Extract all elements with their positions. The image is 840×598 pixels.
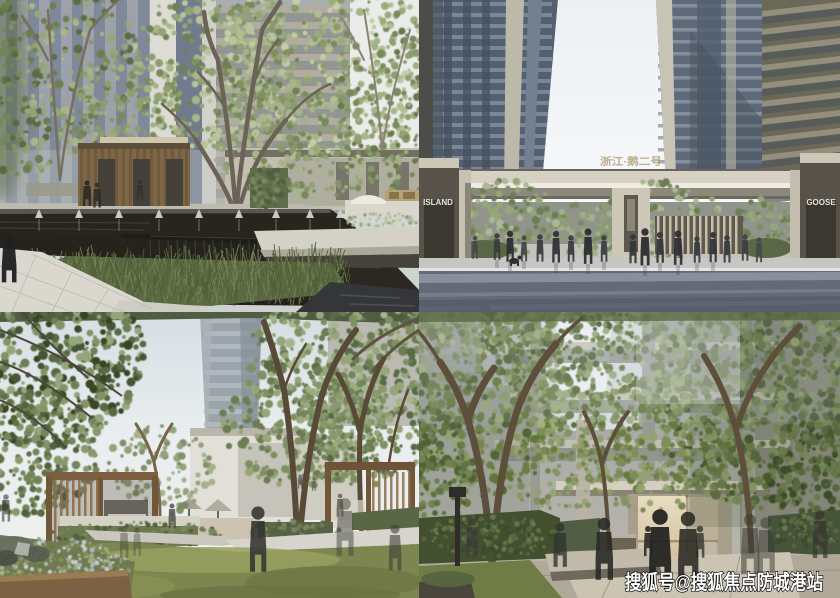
svg-text:GOOSE: GOOSE bbox=[806, 198, 836, 207]
svg-text:浙江·鹅二号: 浙江·鹅二号 bbox=[600, 155, 662, 168]
svg-text:ISLAND: ISLAND bbox=[423, 198, 453, 207]
